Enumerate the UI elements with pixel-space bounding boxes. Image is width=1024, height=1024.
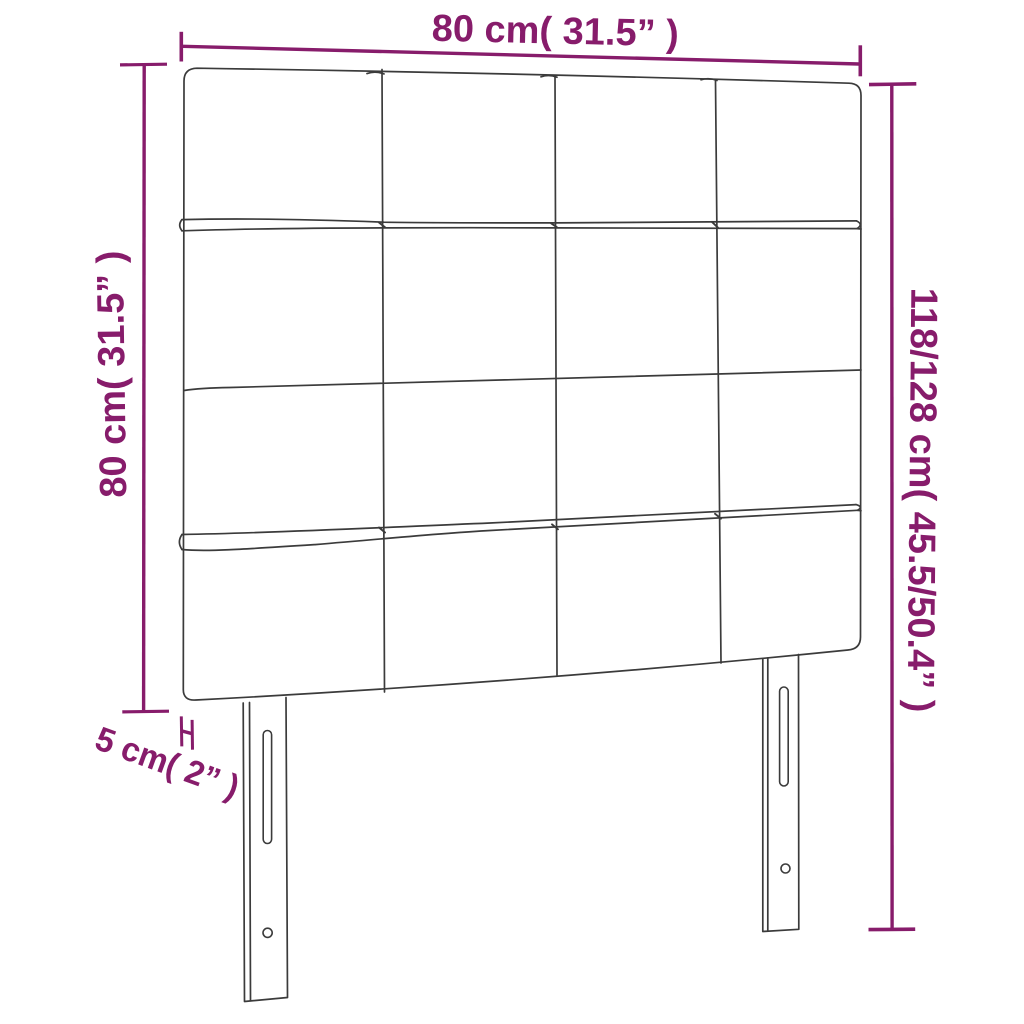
svg-text:118/128 cm( 45.5/50.4” ): 118/128 cm( 45.5/50.4” ) (899, 288, 945, 713)
svg-text:80 cm( 31.5” ): 80 cm( 31.5” ) (431, 8, 679, 56)
svg-text:80 cm( 31.5” ): 80 cm( 31.5” ) (90, 250, 135, 498)
